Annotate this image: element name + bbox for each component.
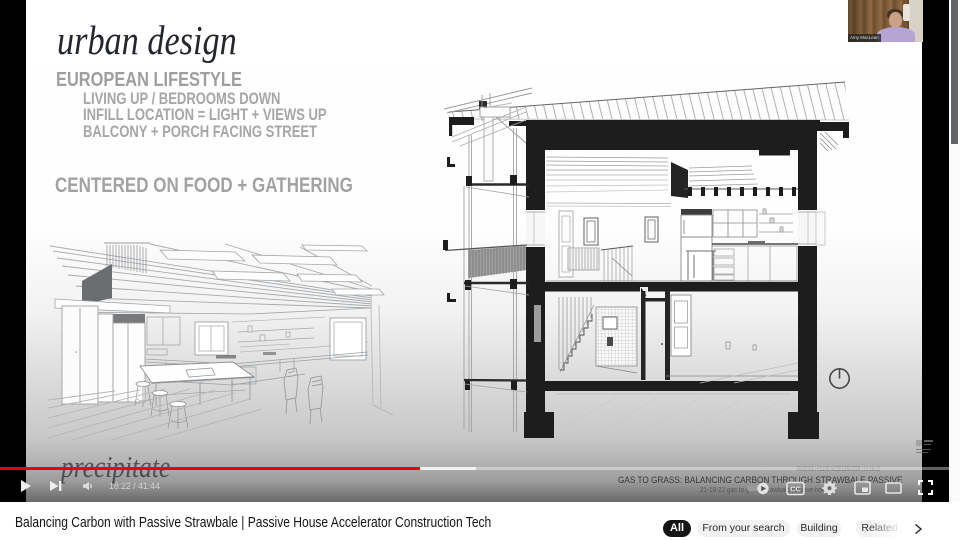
svg-text:CC: CC	[790, 485, 801, 494]
